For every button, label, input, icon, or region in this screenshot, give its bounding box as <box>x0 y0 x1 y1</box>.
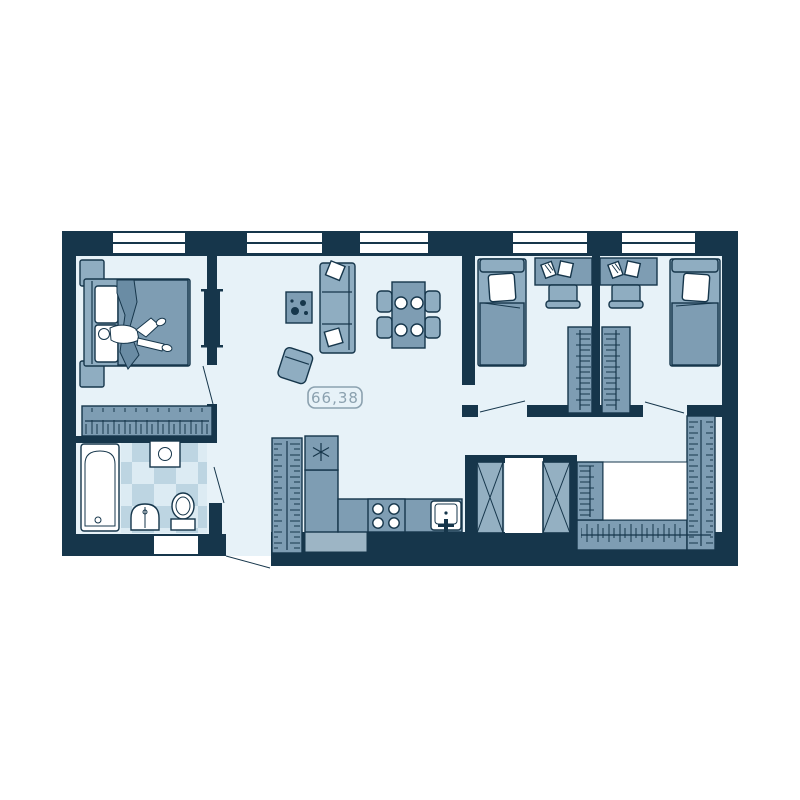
window <box>113 233 185 253</box>
dining-chair <box>425 291 440 312</box>
window <box>360 233 428 253</box>
double-bed <box>84 279 190 369</box>
plate <box>411 297 423 309</box>
counter-return <box>305 532 367 552</box>
pillow <box>488 273 516 302</box>
wardrobe-hangers <box>568 327 592 413</box>
wardrobe-hangers <box>82 406 212 436</box>
single-bed <box>478 259 526 366</box>
desk-chair <box>609 285 643 308</box>
ventilation-shaft <box>477 462 503 533</box>
refrigerator <box>305 436 338 470</box>
stove-4-burners <box>368 499 405 532</box>
hall-closet <box>272 438 302 553</box>
floor-plan: 66,38 <box>0 0 800 800</box>
wash-basin <box>131 504 159 530</box>
area-label: 66,38 <box>308 387 362 408</box>
blanket <box>480 303 524 365</box>
plate <box>411 324 423 336</box>
sofa <box>320 261 355 353</box>
desk-with-books <box>600 258 657 285</box>
bathroom <box>81 441 207 533</box>
window <box>247 233 322 253</box>
pillow <box>95 286 118 323</box>
pillow <box>324 328 343 347</box>
single-bed <box>670 259 720 366</box>
plate <box>395 324 407 336</box>
washing-machine <box>150 441 180 467</box>
kitchen-counter <box>305 470 338 532</box>
entrance-floor <box>222 534 271 556</box>
pillow <box>682 273 710 302</box>
floor-plan-page: 66,38 <box>0 0 800 800</box>
entry-niche <box>154 536 198 554</box>
desk-chair <box>546 285 580 308</box>
closet-interior <box>603 462 687 520</box>
wardrobe-hangers <box>602 327 630 413</box>
plate <box>395 297 407 309</box>
kitchen-sink <box>431 501 461 532</box>
desk-with-books <box>535 258 592 285</box>
bathtub <box>81 444 119 531</box>
coffee-table-with-plant <box>286 292 312 323</box>
dining-table <box>392 282 425 348</box>
blanket <box>672 303 718 365</box>
toilet <box>171 493 195 530</box>
entrance-door-leaf <box>226 556 270 568</box>
window <box>622 233 695 253</box>
ventilation-shaft <box>543 462 570 533</box>
dining-chair <box>425 317 440 338</box>
window <box>513 233 587 253</box>
svg-text:66,38: 66,38 <box>311 389 359 407</box>
dining-chair <box>377 317 392 338</box>
utility-niche <box>505 458 543 533</box>
dining-chair <box>377 291 392 312</box>
